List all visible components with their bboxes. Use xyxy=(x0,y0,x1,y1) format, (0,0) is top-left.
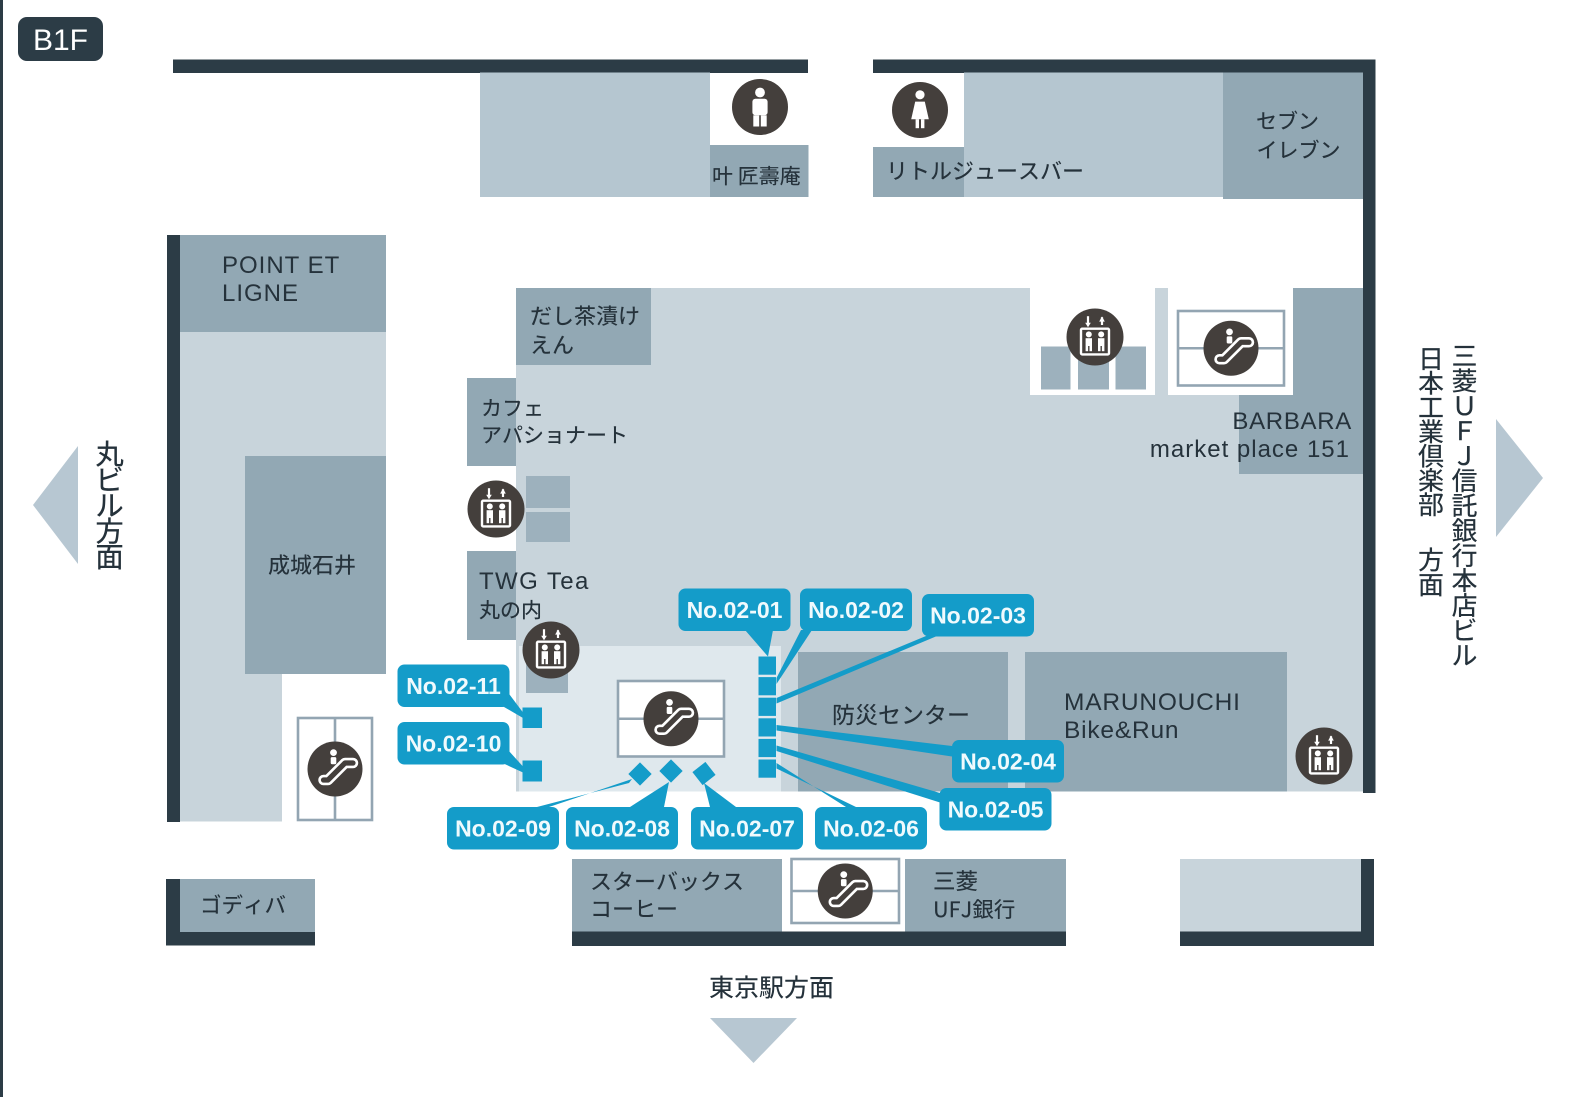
svg-text:B1F: B1F xyxy=(33,24,88,57)
svg-text:No.02-08: No.02-08 xyxy=(574,816,670,842)
svg-text:No.02-04: No.02-04 xyxy=(960,749,1056,775)
svg-text:Bike&Run: Bike&Run xyxy=(1064,717,1179,744)
svg-text:No.02-09: No.02-09 xyxy=(455,816,551,842)
svg-text:No.02-07: No.02-07 xyxy=(699,816,795,842)
svg-text:MARUNOUCHI: MARUNOUCHI xyxy=(1064,689,1241,716)
svg-text:No.02-03: No.02-03 xyxy=(930,603,1026,629)
svg-text:No.02-11: No.02-11 xyxy=(406,673,501,699)
svg-text:No.02-10: No.02-10 xyxy=(406,731,502,757)
svg-text:BARBARA: BARBARA xyxy=(1232,408,1352,435)
svg-text:No.02-05: No.02-05 xyxy=(948,797,1044,823)
svg-text:market place 151: market place 151 xyxy=(1150,436,1350,463)
svg-text:No.02-01: No.02-01 xyxy=(687,597,783,623)
svg-text:No.02-06: No.02-06 xyxy=(823,816,919,842)
svg-text:TWG Tea: TWG Tea xyxy=(479,568,590,595)
svg-text:LIGNE: LIGNE xyxy=(222,280,299,307)
svg-text:No.02-02: No.02-02 xyxy=(808,597,904,623)
svg-text:POINT ET: POINT ET xyxy=(222,252,340,279)
